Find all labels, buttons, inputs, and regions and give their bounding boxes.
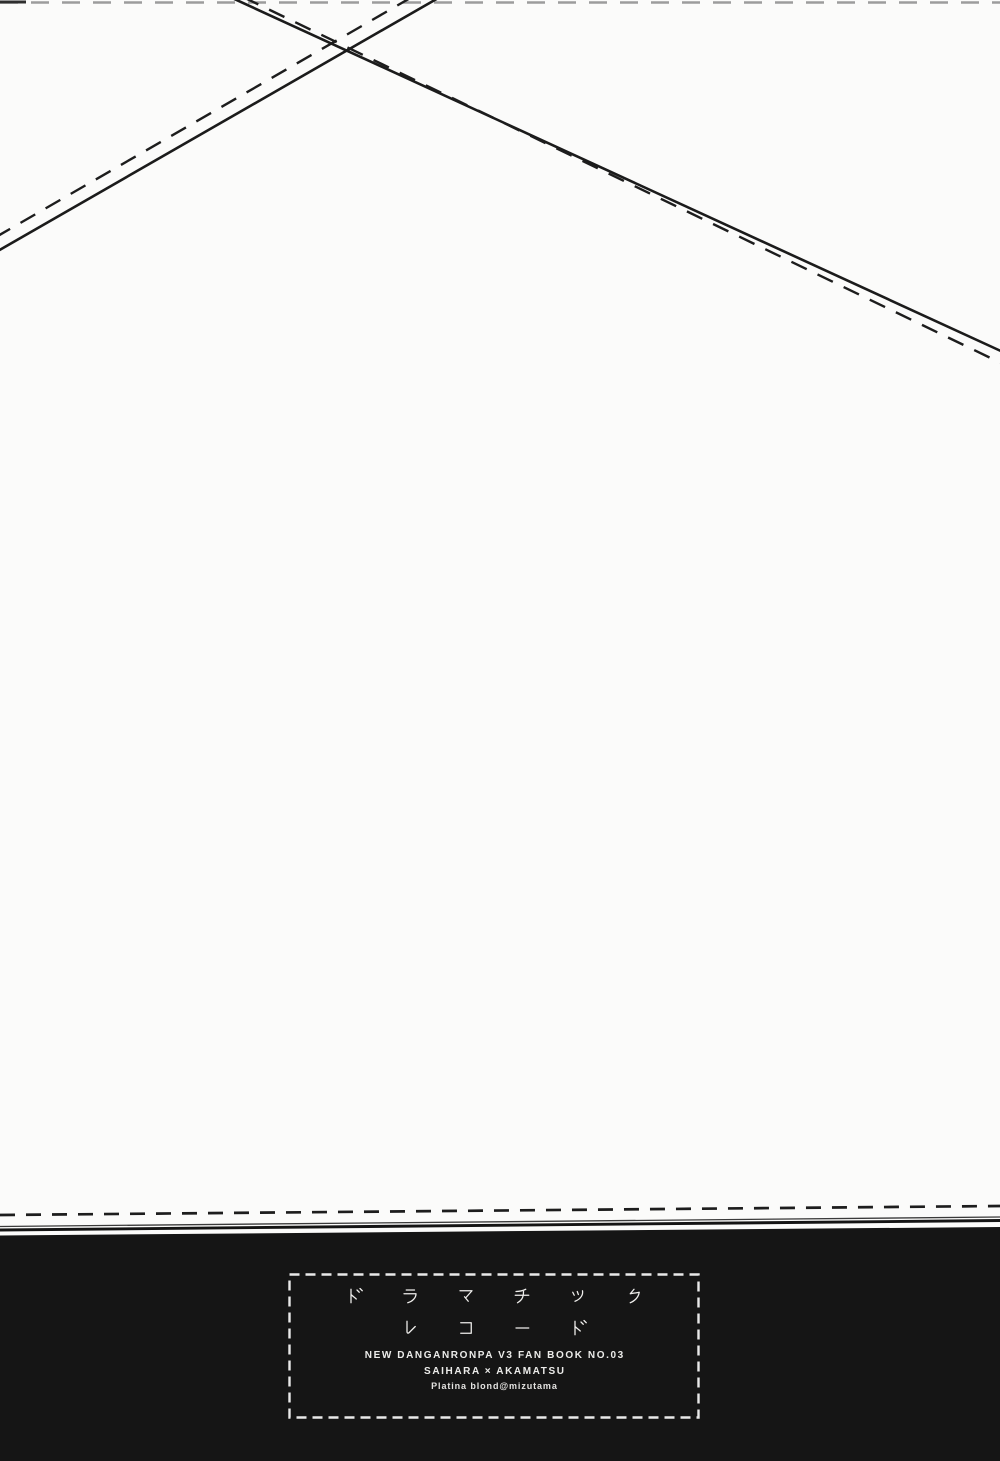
katakana-glyph (625, 1287, 643, 1305)
katakana-glyph (513, 1319, 531, 1337)
pairing-label: SAIHARA × AKAMATSU (288, 1366, 700, 1377)
katakana-glyph (345, 1287, 363, 1305)
doujin-title-line-2 (288, 1319, 700, 1337)
title-box: NEW DANGANRONPA V3 FAN BOOK NO.03 SAIHAR… (288, 1273, 700, 1419)
doujin-title-line-1 (288, 1287, 700, 1305)
katakana-glyph (513, 1287, 531, 1305)
katakana-glyph (569, 1287, 587, 1305)
diagonal-solid-line-left (0, 0, 440, 252)
diagonal-dashed-line-left (0, 0, 412, 237)
fanbook-subtitle: NEW DANGANRONPA V3 FAN BOOK NO.03 (288, 1350, 700, 1361)
circle-credit: Platina blond@mizutama (288, 1381, 700, 1391)
scanned-doujinshi-page: { "page": { "background": "#fbfbfa", "in… (0, 0, 1000, 1461)
katakana-glyph (457, 1319, 475, 1337)
katakana-glyph (401, 1287, 419, 1305)
katakana-glyph (401, 1319, 419, 1337)
footer-dashed-rule (0, 1206, 1000, 1215)
cut-lines-decoration (0, 0, 1000, 1461)
katakana-glyph (457, 1287, 475, 1305)
katakana-glyph (569, 1319, 587, 1337)
